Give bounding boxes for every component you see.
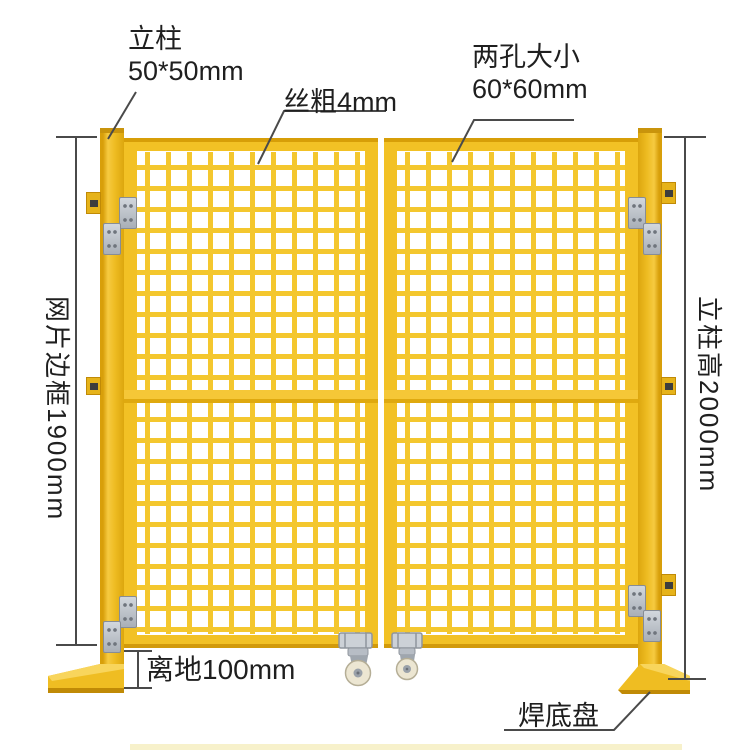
right-leaf-bottom-rail-edge [384,644,638,648]
right-leaf-top-rail-edge [384,138,638,142]
annotation-post-height: 立柱高2000mm [692,296,729,556]
annotation-mesh-frame-height: 网片边框1900mm [40,296,77,556]
left-leaf-top-rail-edge [124,138,378,142]
annotation-base-plate: 焊底盘 [518,694,599,733]
left-top-hinge-icon [119,197,137,229]
left-leaf-mid-rail [124,390,378,403]
bottom-image-edge-strip [130,744,682,750]
right-leaf-mid-rail [384,390,638,403]
left-bottom-hinge-icon [119,596,137,628]
right-post-mid-lug [661,377,676,395]
left-post-mid-lug [86,377,101,395]
left-bottom-hinge-lower-plate-icon [103,621,121,653]
product-diagram-mesh-gate: 立柱 50*50mm 丝粗4mm 两孔大小 60*60mm 网片边框1900mm… [0,0,750,750]
right-post-bottom-lug [661,574,676,596]
annotation-post-size-line2: 50*50mm [128,56,244,88]
annotation-wire-diameter: 丝粗4mm [283,80,397,119]
left-post-top-lug [86,192,101,214]
left-top-hinge-lower-plate-icon [103,223,121,255]
right-top-hinge-lower-plate-icon [643,223,661,255]
right-bottom-hinge-lower-plate-icon [643,610,661,642]
annotation-post-size: 立柱 50*50mm [128,24,244,88]
annotation-hole-size: 两孔大小 60*60mm [472,42,588,106]
annotation-hole-size-line2: 60*60mm [472,74,588,106]
annotation-hole-size-line1: 两孔大小 [472,42,588,74]
annotation-post-size-line1: 立柱 [128,24,244,56]
right-post-top-lug [661,182,676,204]
annotation-ground-clearance: 离地100mm [146,648,295,688]
